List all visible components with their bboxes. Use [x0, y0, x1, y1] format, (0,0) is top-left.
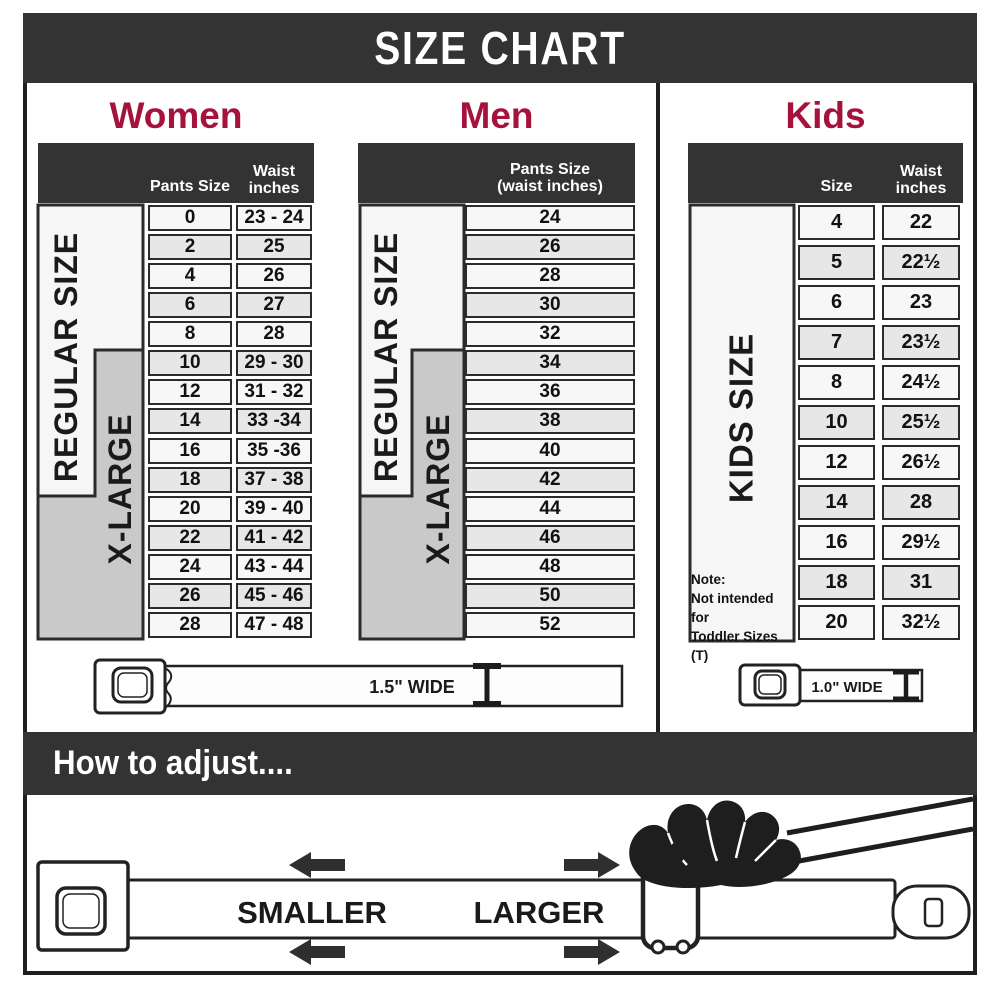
xlarge-size-label: X-LARGE	[102, 414, 138, 565]
table-cell: 42	[465, 467, 635, 493]
table-cell: 7	[798, 325, 875, 360]
table-row: 1629½	[798, 525, 960, 560]
table-cell: 6	[798, 285, 875, 320]
table-cell: 28	[148, 612, 232, 638]
table-row: 1231 - 32	[148, 379, 312, 405]
table-row: 426	[148, 263, 312, 289]
table-row: 2847 - 48	[148, 612, 312, 638]
table-cell: 12	[798, 445, 875, 480]
left-arrow-icon	[289, 939, 345, 965]
table-row: 824½	[798, 365, 960, 400]
table-cell: 35 -36	[236, 438, 312, 464]
table-cell: 44	[465, 496, 635, 522]
table-row: 225	[148, 234, 312, 260]
seatbelt-buckle-icon	[740, 665, 800, 705]
table-cell: 0	[148, 205, 232, 231]
table-row: 26	[465, 234, 635, 260]
table-cell: 10	[798, 405, 875, 440]
table-cell: 6	[148, 292, 232, 318]
table-cell: 24	[148, 554, 232, 580]
table-cell: 29 - 30	[236, 350, 312, 376]
kids-section-title: Kids	[688, 95, 963, 137]
kids-col-size: Size	[798, 178, 875, 195]
table-row: 1029 - 30	[148, 350, 312, 376]
table-cell: 18	[798, 565, 875, 600]
table-cell: 20	[798, 605, 875, 640]
regular-size-label: REGULAR SIZE	[48, 232, 84, 482]
table-cell: 2	[148, 234, 232, 260]
size-chart-banner: SIZE CHART	[23, 13, 977, 83]
table-row: 1635 -36	[148, 438, 312, 464]
table-cell: 5	[798, 245, 875, 280]
table-cell: 22	[148, 525, 232, 551]
table-cell: 41 - 42	[236, 525, 312, 551]
table-row: 34	[465, 350, 635, 376]
table-cell: 38	[465, 408, 635, 434]
larger-label: LARGER	[474, 895, 605, 930]
left-arrow-icon	[289, 852, 345, 878]
table-row: 36	[465, 379, 635, 405]
men-table-rows: 242628303234363840424446485052	[465, 205, 635, 646]
table-cell: 26	[236, 263, 312, 289]
table-cell: 16	[798, 525, 875, 560]
table-cell: 39 - 40	[236, 496, 312, 522]
smaller-label: SMALLER	[237, 895, 387, 930]
table-cell: 8	[798, 365, 875, 400]
seatbelt-buckle-icon	[95, 660, 171, 713]
table-cell: 32½	[882, 605, 960, 640]
table-cell: 12	[148, 379, 232, 405]
table-cell: 32	[465, 321, 635, 347]
table-cell: 26	[148, 583, 232, 609]
section-divider	[656, 83, 660, 732]
kids-table-rows: 422522½623723½824½1025½1226½14281629½183…	[798, 205, 960, 645]
table-row: 28	[465, 263, 635, 289]
kids-note: Note: Not intended for Toddler Sizes (T)	[691, 570, 794, 665]
seatbelt-buckle-icon	[38, 862, 128, 950]
table-row: 24	[465, 205, 635, 231]
table-row: 723½	[798, 325, 960, 360]
table-row: 1831	[798, 565, 960, 600]
xlarge-size-label: X-LARGE	[420, 414, 456, 565]
women-col-pants-size: Pants Size	[148, 178, 232, 195]
table-row: 32	[465, 321, 635, 347]
table-cell: 26	[465, 234, 635, 260]
table-row: 522½	[798, 245, 960, 280]
men-col-pants-size: Pants Size (waist inches)	[465, 161, 635, 195]
table-row: 2645 - 46	[148, 583, 312, 609]
table-row: 1837 - 38	[148, 467, 312, 493]
men-section-title: Men	[358, 95, 635, 137]
table-cell: 47 - 48	[236, 612, 312, 638]
adjust-illustration: SMALLER LARGER	[27, 795, 973, 971]
page-title: SIZE CHART	[374, 21, 626, 75]
belt-width-label: 1.5" WIDE	[369, 677, 455, 697]
women-col-waist: Waist inches	[236, 163, 312, 197]
table-cell: 28	[236, 321, 312, 347]
men-table-header: Pants Size (waist inches)	[358, 143, 635, 203]
table-cell: 24½	[882, 365, 960, 400]
adult-belt-illustration: 1.5" WIDE	[90, 656, 625, 718]
table-cell: 46	[465, 525, 635, 551]
men-size-group-labels: REGULAR SIZE X-LARGE	[358, 203, 466, 641]
table-cell: 20	[148, 496, 232, 522]
table-cell: 33 -34	[236, 408, 312, 434]
right-arrow-icon	[564, 939, 620, 965]
table-row: 1226½	[798, 445, 960, 480]
table-cell: 14	[798, 485, 875, 520]
adjust-title: How to adjust....	[53, 744, 293, 783]
table-cell: 29½	[882, 525, 960, 560]
table-cell: 43 - 44	[236, 554, 312, 580]
women-table-header: Pants Size Waist inches	[38, 143, 314, 203]
table-row: 30	[465, 292, 635, 318]
women-section-title: Women	[38, 95, 314, 137]
table-cell: 8	[148, 321, 232, 347]
table-cell: 22	[882, 205, 960, 240]
table-cell: 52	[465, 612, 635, 638]
table-cell: 48	[465, 554, 635, 580]
kids-belt-illustration: 1.0" WIDE	[735, 660, 935, 710]
women-table-rows: 023 - 242254266278281029 - 301231 - 3214…	[148, 205, 312, 646]
table-row: 2039 - 40	[148, 496, 312, 522]
table-cell: 25½	[882, 405, 960, 440]
table-row: 623	[798, 285, 960, 320]
table-cell: 34	[465, 350, 635, 376]
table-cell: 23	[882, 285, 960, 320]
table-row: 1433 -34	[148, 408, 312, 434]
arm-line	[799, 829, 973, 861]
adjust-banner: How to adjust....	[23, 732, 977, 795]
women-size-group-labels: REGULAR SIZE X-LARGE	[36, 203, 146, 641]
table-cell: 14	[148, 408, 232, 434]
kids-table-header: Size Waist inches	[688, 143, 963, 203]
table-cell: 40	[465, 438, 635, 464]
table-cell: 26½	[882, 445, 960, 480]
table-row: 1428	[798, 485, 960, 520]
table-row: 828	[148, 321, 312, 347]
hand-icon	[629, 799, 973, 888]
arm-line	[787, 799, 973, 833]
table-row: 50	[465, 583, 635, 609]
table-cell: 23½	[882, 325, 960, 360]
table-cell: 4	[148, 263, 232, 289]
size-chart-graphic: SIZE CHART Women Men Kids Pants Size Wai…	[0, 0, 1000, 1000]
table-cell: 18	[148, 467, 232, 493]
table-cell: 10	[148, 350, 232, 376]
table-cell: 25	[236, 234, 312, 260]
regular-size-label: REGULAR SIZE	[368, 232, 404, 482]
table-row: 46	[465, 525, 635, 551]
table-cell: 22½	[882, 245, 960, 280]
table-row: 48	[465, 554, 635, 580]
table-cell: 16	[148, 438, 232, 464]
table-cell: 4	[798, 205, 875, 240]
table-row: 2241 - 42	[148, 525, 312, 551]
table-cell: 31	[882, 565, 960, 600]
table-row: 52	[465, 612, 635, 638]
table-row: 1025½	[798, 405, 960, 440]
belt-tip	[893, 886, 969, 938]
table-row: 40	[465, 438, 635, 464]
table-cell: 31 - 32	[236, 379, 312, 405]
table-cell: 45 - 46	[236, 583, 312, 609]
table-cell: 28	[465, 263, 635, 289]
table-row: 2443 - 44	[148, 554, 312, 580]
table-cell: 36	[465, 379, 635, 405]
table-row: 42	[465, 467, 635, 493]
table-cell: 37 - 38	[236, 467, 312, 493]
kids-size-label: KIDS SIZE	[723, 333, 760, 503]
table-cell: 24	[465, 205, 635, 231]
table-cell: 30	[465, 292, 635, 318]
right-arrow-icon	[564, 852, 620, 878]
table-cell: 50	[465, 583, 635, 609]
table-row: 38	[465, 408, 635, 434]
table-cell: 27	[236, 292, 312, 318]
table-row: 023 - 24	[148, 205, 312, 231]
kids-col-waist: Waist inches	[882, 163, 960, 197]
table-row: 627	[148, 292, 312, 318]
table-cell: 23 - 24	[236, 205, 312, 231]
table-row: 422	[798, 205, 960, 240]
belt-width-label: 1.0" WIDE	[811, 679, 882, 696]
table-row: 2032½	[798, 605, 960, 640]
table-row: 44	[465, 496, 635, 522]
table-cell: 28	[882, 485, 960, 520]
